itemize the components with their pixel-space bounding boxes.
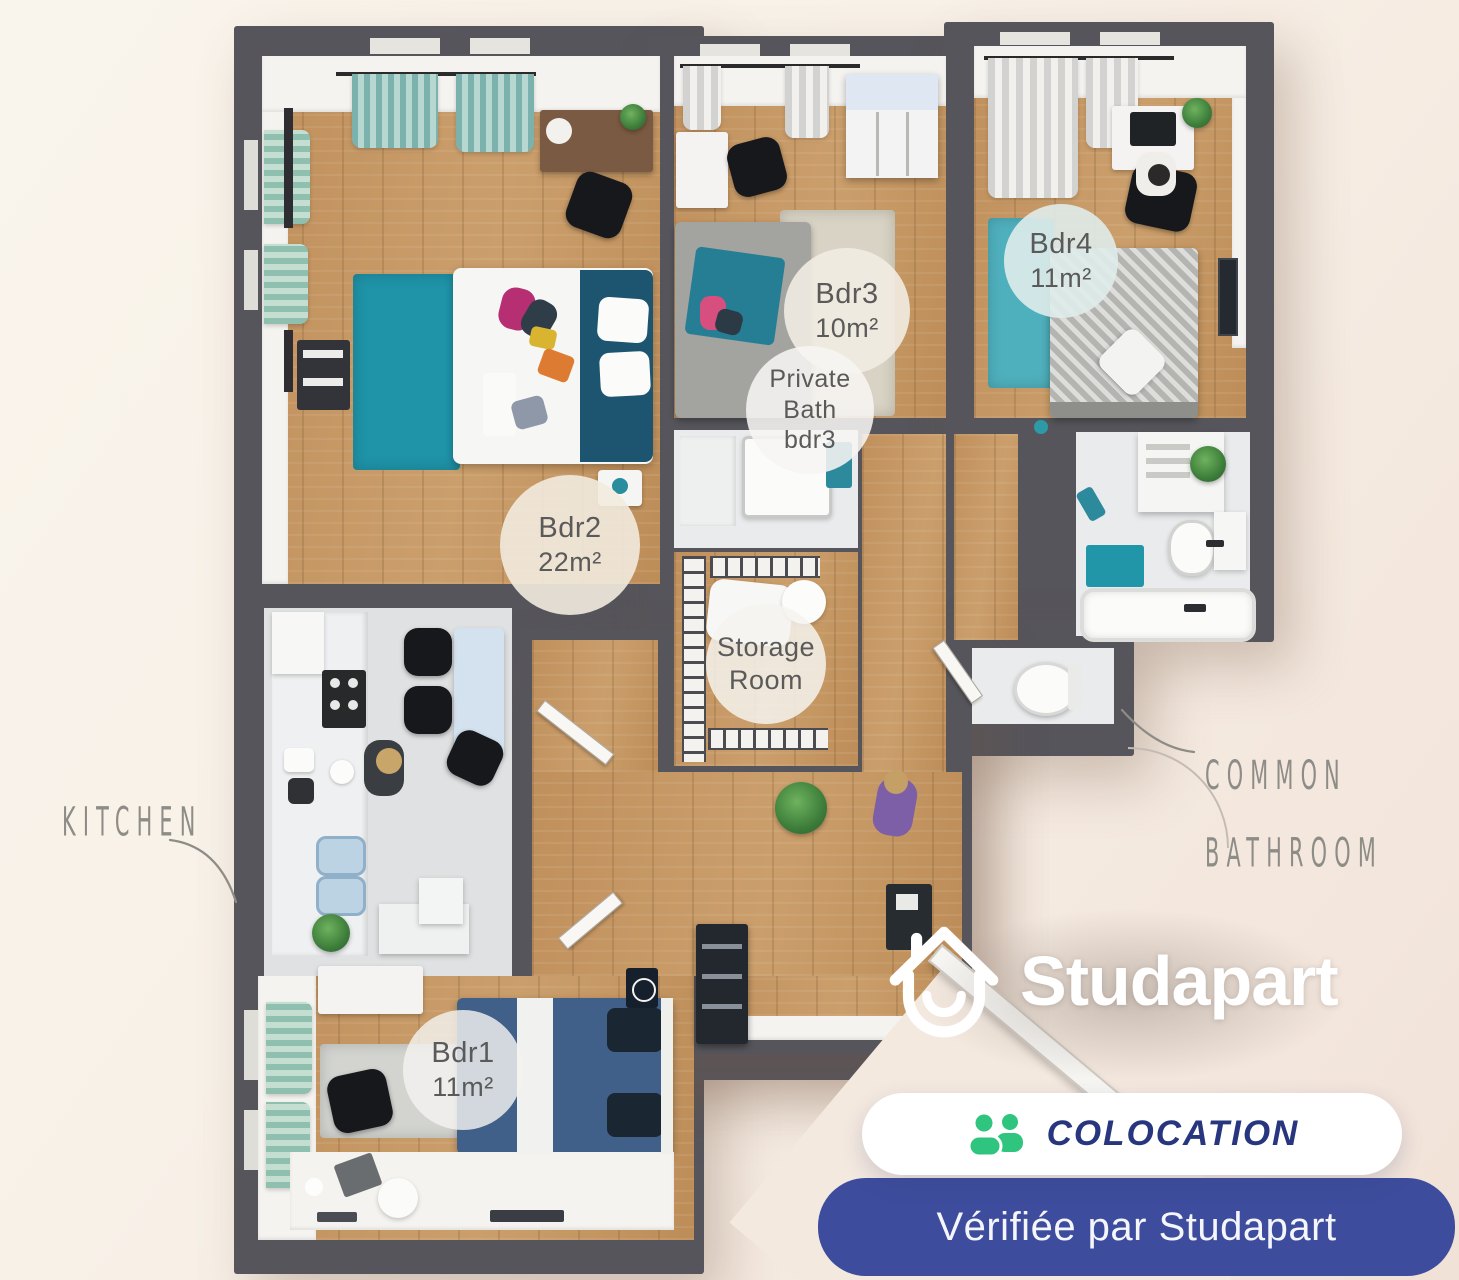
window	[370, 38, 440, 54]
curtains	[264, 244, 308, 324]
wardrobe	[696, 924, 748, 1044]
room-name: bdr3	[784, 425, 836, 456]
window	[244, 250, 258, 310]
room-name: Bdr4	[1029, 227, 1092, 262]
room-area: 11m²	[1030, 262, 1092, 295]
kitchen-annotation: KITCHEN	[62, 800, 203, 847]
sink	[1168, 520, 1216, 576]
room-label-bdr4: Bdr4 11m²	[1004, 204, 1118, 318]
mug	[305, 1178, 323, 1196]
plant	[775, 782, 827, 834]
curtains	[456, 74, 534, 152]
curtains	[352, 74, 438, 148]
person	[1148, 164, 1170, 186]
plant	[1190, 446, 1226, 482]
compass-decor	[632, 978, 656, 1002]
kitchen-pointer-line	[170, 840, 236, 902]
person	[884, 770, 908, 794]
colocation-badge: COLOCATION	[862, 1093, 1402, 1175]
room-label-bdr2: Bdr2 22m²	[500, 475, 640, 615]
room-name: Bdr3	[815, 277, 878, 312]
window	[1100, 32, 1160, 45]
desk-lamp	[546, 118, 572, 144]
toilet-tank	[1068, 664, 1082, 710]
plant	[312, 914, 350, 952]
room-name: Bdr2	[538, 511, 601, 546]
pillow	[599, 351, 651, 398]
washing-machine-drawer	[1146, 444, 1190, 450]
shelf-rack	[710, 556, 820, 578]
logo-wordmark: Studapart	[1020, 941, 1338, 1021]
washing-machine-drawer	[1146, 472, 1190, 478]
room-area: 10m²	[815, 312, 879, 345]
faucet	[1206, 540, 1224, 547]
room-name: Storage	[717, 631, 815, 664]
studapart-house-icon	[878, 912, 1010, 1049]
room-name: Bdr1	[431, 1036, 494, 1071]
corridor	[954, 434, 1018, 640]
common-bathroom-annotation: COMMON BATHROOM	[1205, 738, 1383, 893]
plant	[620, 104, 646, 130]
phone	[317, 1212, 357, 1222]
window	[244, 140, 258, 210]
room-name: Bath	[783, 395, 836, 426]
bed-footboard	[1050, 402, 1198, 418]
washing-machine-drawer	[1146, 458, 1190, 464]
room-label-storage: Storage Room	[706, 604, 826, 724]
room-name: Private	[769, 364, 850, 395]
wardrobe-divider	[876, 112, 879, 176]
faucet	[1184, 604, 1206, 612]
shelf-vase	[1034, 420, 1048, 434]
window	[1000, 32, 1070, 45]
radiator	[284, 108, 293, 228]
wardrobe-shelf	[702, 944, 742, 949]
wall-art	[1218, 258, 1238, 336]
person	[376, 748, 402, 774]
window	[470, 38, 530, 54]
corridor	[862, 434, 946, 772]
wardrobe-divider	[906, 112, 909, 176]
stove-burner	[348, 700, 358, 710]
pillow	[607, 1008, 663, 1052]
badge-label: COLOCATION	[1047, 1114, 1300, 1154]
plant	[1182, 98, 1212, 128]
keyboard	[490, 1210, 564, 1222]
room-area: 11m²	[432, 1071, 494, 1104]
bathtub	[1080, 588, 1256, 642]
desk-lamp	[378, 1178, 418, 1218]
curtains	[785, 66, 829, 138]
window	[244, 1110, 258, 1170]
wardrobe-top	[846, 74, 938, 110]
laptop	[1130, 112, 1176, 146]
curtains	[988, 58, 1078, 198]
desk	[676, 132, 728, 208]
stove-burner	[330, 678, 340, 688]
radiator	[284, 330, 293, 392]
banner-text: Vérifiée par Studapart	[936, 1205, 1336, 1250]
stove-burner	[330, 700, 340, 710]
stove	[322, 670, 366, 728]
window	[244, 1010, 258, 1080]
dining-chair	[404, 686, 452, 734]
coffee-maker	[288, 778, 314, 804]
floorplan-scene: Bdr2 22m² Bdr3 10m² Private Bath bdr3 Bd…	[0, 0, 1459, 1280]
room-area: 22m²	[538, 546, 602, 579]
plate	[330, 760, 354, 784]
bookshelf-items	[303, 378, 343, 386]
bath-mat	[1086, 545, 1144, 587]
curtains	[266, 1002, 312, 1094]
rug	[353, 274, 460, 470]
curtains	[683, 66, 721, 130]
room-label-bdr1: Bdr1 11m²	[403, 1010, 523, 1130]
studapart-logo: Studapart	[878, 912, 1338, 1049]
people-icon	[965, 1109, 1029, 1159]
pillow	[607, 1093, 663, 1137]
wardrobe-shelf	[702, 974, 742, 979]
room-name: Room	[729, 664, 803, 697]
bathroom-cabinet	[680, 436, 736, 526]
kitchen-sink	[316, 836, 366, 876]
kitchen-sink	[316, 876, 366, 916]
stove-burner	[348, 678, 358, 688]
headboard	[661, 998, 673, 1154]
bookshelf-items	[303, 350, 343, 358]
dresser	[318, 966, 423, 1014]
shelf-rack	[682, 556, 706, 762]
kitchen-cabinet	[419, 878, 463, 924]
toaster	[284, 748, 314, 772]
dining-chair	[404, 628, 452, 676]
annotation-line: COMMON	[1205, 738, 1383, 816]
wardrobe-shelf	[702, 1004, 742, 1009]
verified-banner: Vérifiée par Studapart	[818, 1178, 1455, 1276]
shelf-rack	[708, 728, 828, 750]
room-label-private-bath: Private Bath bdr3	[746, 346, 874, 474]
fridge	[272, 612, 324, 674]
pillow	[597, 296, 650, 343]
